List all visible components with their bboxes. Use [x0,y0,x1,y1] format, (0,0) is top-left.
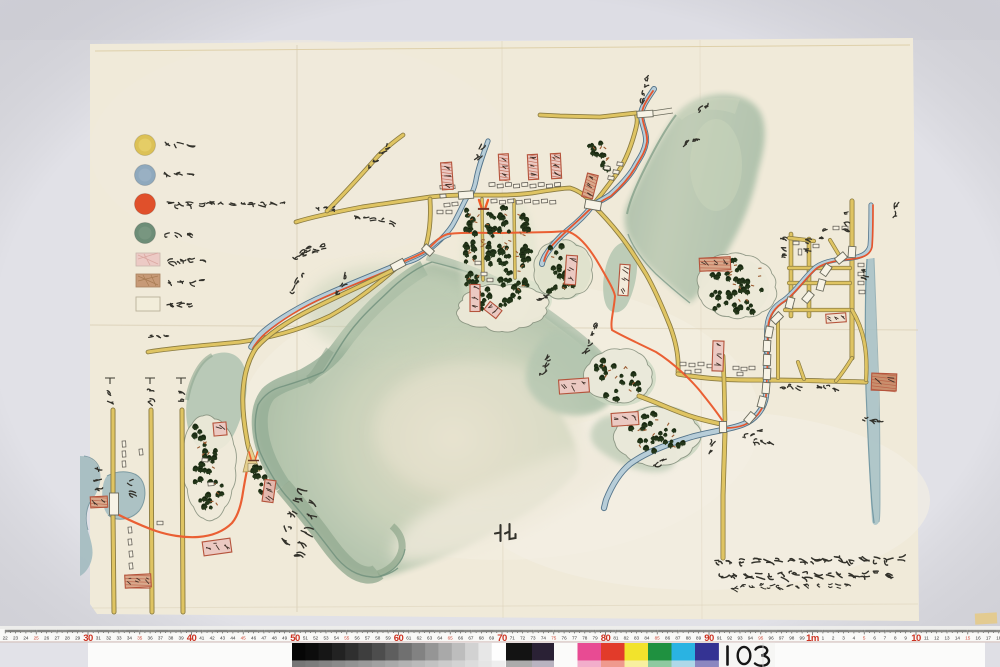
svg-text:88: 88 [686,636,692,641]
svg-text:31: 31 [96,636,102,641]
svg-text:51: 51 [303,636,309,641]
svg-text:40: 40 [187,633,197,644]
svg-text:44: 44 [230,636,236,641]
svg-text:37: 37 [158,636,164,641]
svg-text:59: 59 [386,636,392,641]
svg-text:38: 38 [168,636,174,641]
svg-text:23: 23 [13,636,19,641]
svg-text:1m: 1m [806,633,819,644]
svg-text:18: 18 [996,636,1000,641]
svg-text:84: 84 [644,636,650,641]
svg-text:5: 5 [863,636,866,641]
svg-text:10: 10 [911,633,921,644]
svg-text:35: 35 [137,636,143,641]
svg-text:17: 17 [986,636,992,641]
svg-text:16: 16 [976,636,982,641]
svg-text:42: 42 [210,636,216,641]
svg-text:8: 8 [894,636,897,641]
svg-text:69: 69 [489,636,495,641]
svg-text:62: 62 [417,636,423,641]
svg-text:94: 94 [748,636,754,641]
svg-text:80: 80 [601,633,611,644]
svg-text:89: 89 [696,636,702,641]
svg-text:52: 52 [313,636,319,641]
svg-text:66: 66 [458,636,464,641]
svg-text:32: 32 [106,636,112,641]
svg-text:39: 39 [179,636,185,641]
svg-text:7: 7 [884,636,887,641]
svg-text:47: 47 [261,636,267,641]
svg-text:50: 50 [290,633,300,644]
svg-text:70: 70 [497,633,507,644]
svg-text:25: 25 [34,636,40,641]
svg-text:12: 12 [934,636,940,641]
svg-text:85: 85 [655,636,661,641]
svg-text:9: 9 [904,636,907,641]
svg-text:28: 28 [65,636,71,641]
svg-text:53: 53 [323,636,329,641]
svg-text:83: 83 [634,636,640,641]
svg-text:76: 76 [562,636,568,641]
svg-text:49: 49 [282,636,288,641]
svg-text:93: 93 [737,636,743,641]
svg-text:57: 57 [365,636,371,641]
svg-text:24: 24 [23,636,29,641]
svg-text:67: 67 [468,636,474,641]
svg-text:45: 45 [241,636,247,641]
svg-text:72: 72 [520,636,526,641]
svg-text:99: 99 [800,636,806,641]
svg-text:43: 43 [220,636,226,641]
svg-text:2: 2 [832,636,835,641]
svg-text:90: 90 [704,633,714,644]
svg-text:61: 61 [406,636,412,641]
svg-text:33: 33 [116,636,122,641]
svg-text:14: 14 [955,636,961,641]
svg-text:3: 3 [842,636,845,641]
svg-text:87: 87 [675,636,681,641]
svg-text:26: 26 [44,636,50,641]
svg-text:48: 48 [272,636,278,641]
svg-text:71: 71 [510,636,516,641]
svg-text:27: 27 [54,636,60,641]
svg-text:79: 79 [593,636,599,641]
svg-text:55: 55 [344,636,350,641]
svg-text:36: 36 [148,636,154,641]
svg-text:58: 58 [375,636,381,641]
svg-text:46: 46 [251,636,257,641]
svg-text:78: 78 [582,636,588,641]
svg-text:1: 1 [822,636,825,641]
svg-text:77: 77 [572,636,578,641]
svg-text:82: 82 [624,636,630,641]
svg-text:6: 6 [873,636,876,641]
svg-text:81: 81 [613,636,619,641]
svg-text:74: 74 [541,636,547,641]
svg-text:92: 92 [727,636,733,641]
svg-text:29: 29 [75,636,81,641]
svg-text:64: 64 [437,636,443,641]
svg-text:73: 73 [530,636,536,641]
svg-text:96: 96 [769,636,775,641]
svg-text:98: 98 [789,636,795,641]
svg-text:97: 97 [779,636,785,641]
svg-text:11: 11 [924,636,929,641]
svg-text:4: 4 [853,636,856,641]
svg-text:60: 60 [394,633,404,644]
svg-text:95: 95 [758,636,764,641]
svg-text:15: 15 [965,636,971,641]
svg-text:68: 68 [479,636,485,641]
svg-text:56: 56 [355,636,361,641]
svg-text:54: 54 [334,636,340,641]
svg-text:41: 41 [199,636,205,641]
svg-text:75: 75 [551,636,557,641]
svg-text:22: 22 [3,636,9,641]
svg-text:30: 30 [83,633,93,644]
svg-text:34: 34 [127,636,133,641]
svg-text:63: 63 [427,636,433,641]
svg-text:13: 13 [944,636,950,641]
svg-text:86: 86 [665,636,671,641]
svg-text:91: 91 [717,636,723,641]
svg-text:65: 65 [448,636,454,641]
